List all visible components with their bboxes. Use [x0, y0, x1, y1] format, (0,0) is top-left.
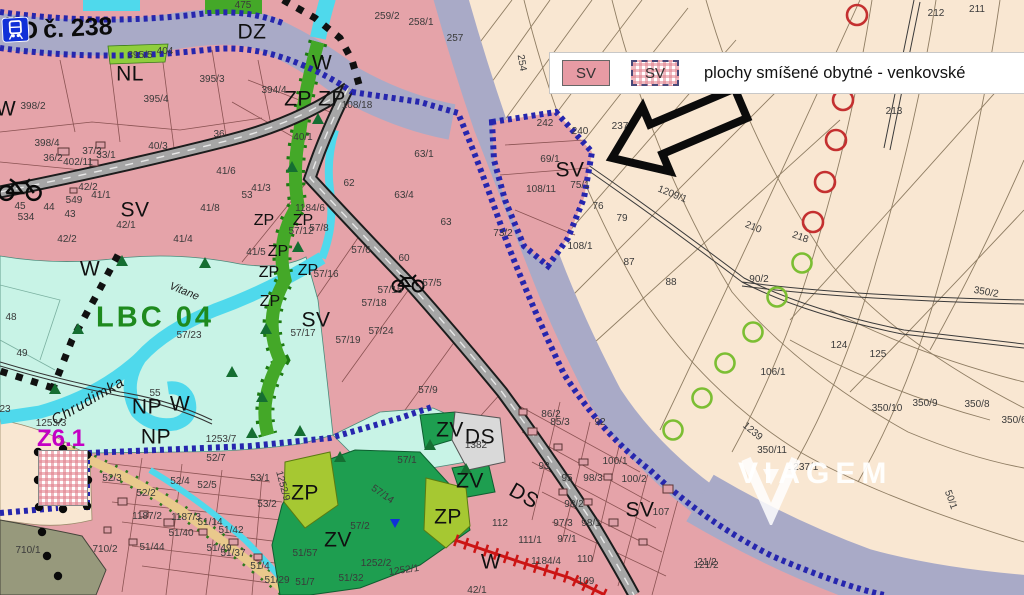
railway-label: ČD č. 238: [1, 12, 113, 47]
boundary-dot: [54, 572, 62, 580]
building: [519, 409, 527, 415]
building: [96, 142, 105, 148]
building: [118, 498, 127, 505]
building: [70, 188, 77, 193]
building: [104, 527, 111, 533]
building: [639, 539, 647, 545]
building: [609, 519, 618, 526]
stream-crossing: [318, 0, 328, 38]
building: [579, 459, 588, 465]
legend: SV SV plochy smíšené obytné - venkovské: [549, 52, 1024, 94]
building: [229, 539, 238, 545]
legend-swatch-sv-hatched: SV: [631, 60, 679, 86]
boundary-dot: [59, 505, 67, 513]
building: [254, 554, 262, 560]
legend-description: plochy smíšené obytné - venkovské: [704, 64, 965, 83]
stream-top: [83, 0, 140, 11]
building: [528, 428, 537, 435]
boundary-dot: [38, 528, 46, 536]
building: [58, 148, 69, 155]
building: [604, 474, 612, 480]
legend-swatch-label: SV: [645, 65, 665, 82]
building: [554, 444, 562, 450]
building: [140, 511, 148, 517]
building: [164, 519, 174, 526]
map-viewport[interactable]: DZNLWWZPZPSVSVSVWNPWNPSVZPZVDSZVZPDSZVWS…: [0, 0, 1024, 595]
building: [129, 539, 137, 545]
building: [559, 489, 567, 495]
train-icon: [1, 17, 29, 43]
building: [199, 529, 207, 535]
building: [90, 160, 98, 166]
legend-swatch-sv-filled: SV: [562, 60, 610, 86]
boundary-dot: [43, 552, 51, 560]
building: [584, 499, 592, 505]
development-area-z61: [38, 450, 88, 506]
railway-number-label: č. 238: [42, 12, 113, 45]
legend-swatch-label: SV: [576, 65, 596, 82]
building: [663, 485, 673, 493]
